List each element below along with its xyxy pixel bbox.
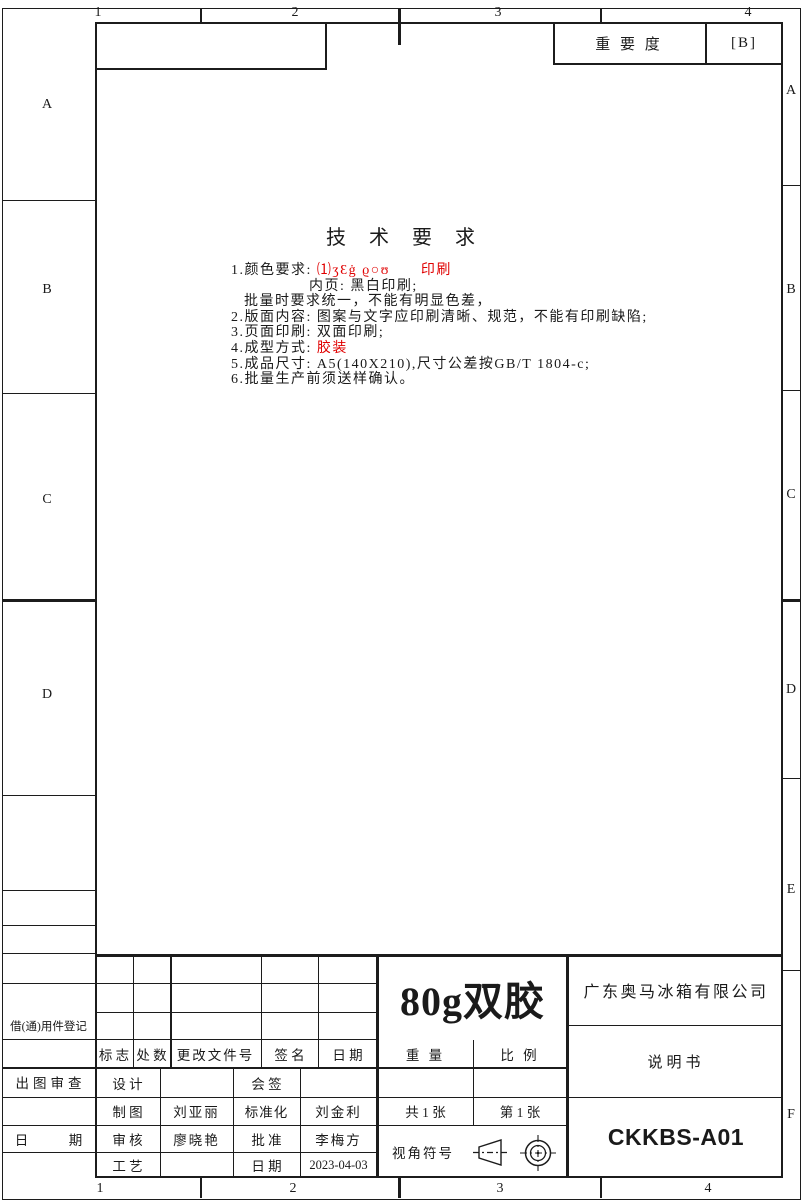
zone-letter-left-d: D [37,687,57,703]
zone-number-top-3: 3 [488,5,508,21]
check-label: 审 核 [95,1125,160,1152]
approve-label: 批 准 [233,1125,300,1152]
zone-letter-right-a: A [782,83,800,99]
zone-number-top-1: 1 [88,5,108,21]
zone-tick-top-1 [200,8,202,22]
tech-requirements-title: 技 术 要 求 [320,222,490,248]
draft-name: 刘亚丽 [160,1097,233,1125]
revision-header-date: 日 期 [318,1040,377,1067]
first-angle-cone-icon [472,1135,512,1171]
tech-line-1-text: 1.颜色要求: [231,263,317,278]
center-mark-bottom [398,1178,401,1198]
revision-header-signature: 签 名 [261,1040,318,1067]
zone-number-bottom-3: 3 [490,1180,510,1198]
zone-tick-right-1 [783,185,800,186]
zone-tick-bottom-1 [200,1178,202,1198]
tech-line-6-text: 4.成型方式: [231,341,317,356]
tech-line-7: 5.成品尺寸: A5(140X210),尺寸公差按GB/T 1804-c; [231,357,741,373]
left-strip-line-890 [2,890,95,891]
zone-letter-left-b: B [37,282,57,298]
tech-line-1-red-text: ⑴ʒƐġ ϱ○ʊ 印刷 [317,263,452,278]
standardization-label: 标准化 [233,1097,300,1125]
zone-number-bottom-2: 2 [283,1180,303,1198]
tech-line-6-red-text: 胶装 [317,341,348,356]
tech-line-4: 2.版面内容: 图案与文字应印刷清晰、规范，不能有印刷缺陷; [231,310,741,326]
zone-letter-right-b: B [782,282,800,298]
zone-tick-right-3 [783,778,800,779]
tech-line-8: 6.批量生产前须送样确认。 [231,372,741,388]
revision-header-mark: 标 志 [95,1040,133,1067]
design-label: 设 计 [95,1068,160,1097]
zone-tick-right-4 [783,970,800,971]
draft-label: 制 图 [95,1097,160,1125]
left-strip-line-953 [2,953,95,954]
scale-label: 比 例 [473,1040,567,1067]
tech-line-1: 1.颜色要求: ⑴ʒƐġ ϱ○ʊ 印刷 [231,263,741,279]
importance-value: [B] [705,22,783,65]
process-label: 工 艺 [95,1152,160,1178]
check-name: 廖晓艳 [160,1125,233,1152]
left-date-label: 日 期 [2,1125,95,1152]
zone-letter-right-c: C [782,487,800,503]
zone-letter-left-c: C [37,492,57,508]
drawing-sheet: 1 2 3 4 1 2 3 4 A B C D A B C D E F 重 要 … [0,0,802,1201]
countersign-label: 会 签 [233,1068,300,1097]
tech-requirements-body: 1.颜色要求: ⑴ʒƐġ ϱ○ʊ 印刷 内页: 黑白印刷; 批量时要求统一，不能… [231,263,741,388]
zone-tick-bottom-2 [600,1178,602,1198]
doc-number: CKKBS-A01 [569,1097,783,1178]
zone-tick-top-2 [600,8,602,22]
zone-letter-right-d: D [782,682,800,698]
importance-label: 重 要 度 [553,22,705,65]
zone-number-top-2: 2 [285,5,305,21]
sheets-total: 共 1 张 [378,1097,473,1125]
doc-type: 说明书 [569,1025,783,1097]
zone-number-bottom-1: 1 [90,1180,110,1198]
tech-line-6: 4.成型方式: 胶装 [231,341,741,357]
revision-line-1012 [95,1012,377,1013]
zone-tick-left-1 [2,200,95,201]
tech-line-3: 批量时要求统一，不能有明显色差， [231,294,741,310]
zone-letter-right-f: F [782,1107,800,1123]
plot-review-label: 出图审查 [2,1067,95,1097]
standardization-name: 刘金利 [300,1097,377,1125]
view-symbol-label: 视角符号 [382,1125,464,1178]
center-mark-left [2,599,95,602]
center-mark-top [398,8,401,45]
tech-line-5: 3.页面印刷: 双面印刷; [231,325,741,341]
title-box-blank [95,22,327,70]
zone-letter-right-e: E [782,882,800,898]
weight-label: 重 量 [378,1040,473,1067]
center-mark-right [783,599,800,602]
projection-circle-icon [518,1133,558,1173]
tech-line-2: 内页: 黑白印刷; [231,279,741,295]
sheet-current: 第 1 张 [473,1097,567,1125]
zone-tick-left-2 [2,393,95,394]
titleblock-date-label: 日 期 [233,1152,300,1178]
borrow-record-label: 借(通)用件登记 [2,983,95,1038]
revision-header-docno: 更改文件号 [170,1040,261,1067]
material-name: 80g双胶 [378,955,567,1040]
zone-number-top-4: 4 [738,5,758,21]
zone-tick-left-3 [2,795,95,796]
zone-letter-left-a: A [37,97,57,113]
approve-name: 李梅方 [300,1125,377,1152]
revision-header-count: 处 数 [133,1040,170,1067]
zone-tick-right-2 [783,390,800,391]
zone-number-bottom-4: 4 [698,1180,718,1198]
left-strip-line-925 [2,925,95,926]
company-name: 广东奥马冰箱有限公司 [569,955,783,1025]
titleblock-date-value: 2023-04-03 [300,1152,377,1178]
